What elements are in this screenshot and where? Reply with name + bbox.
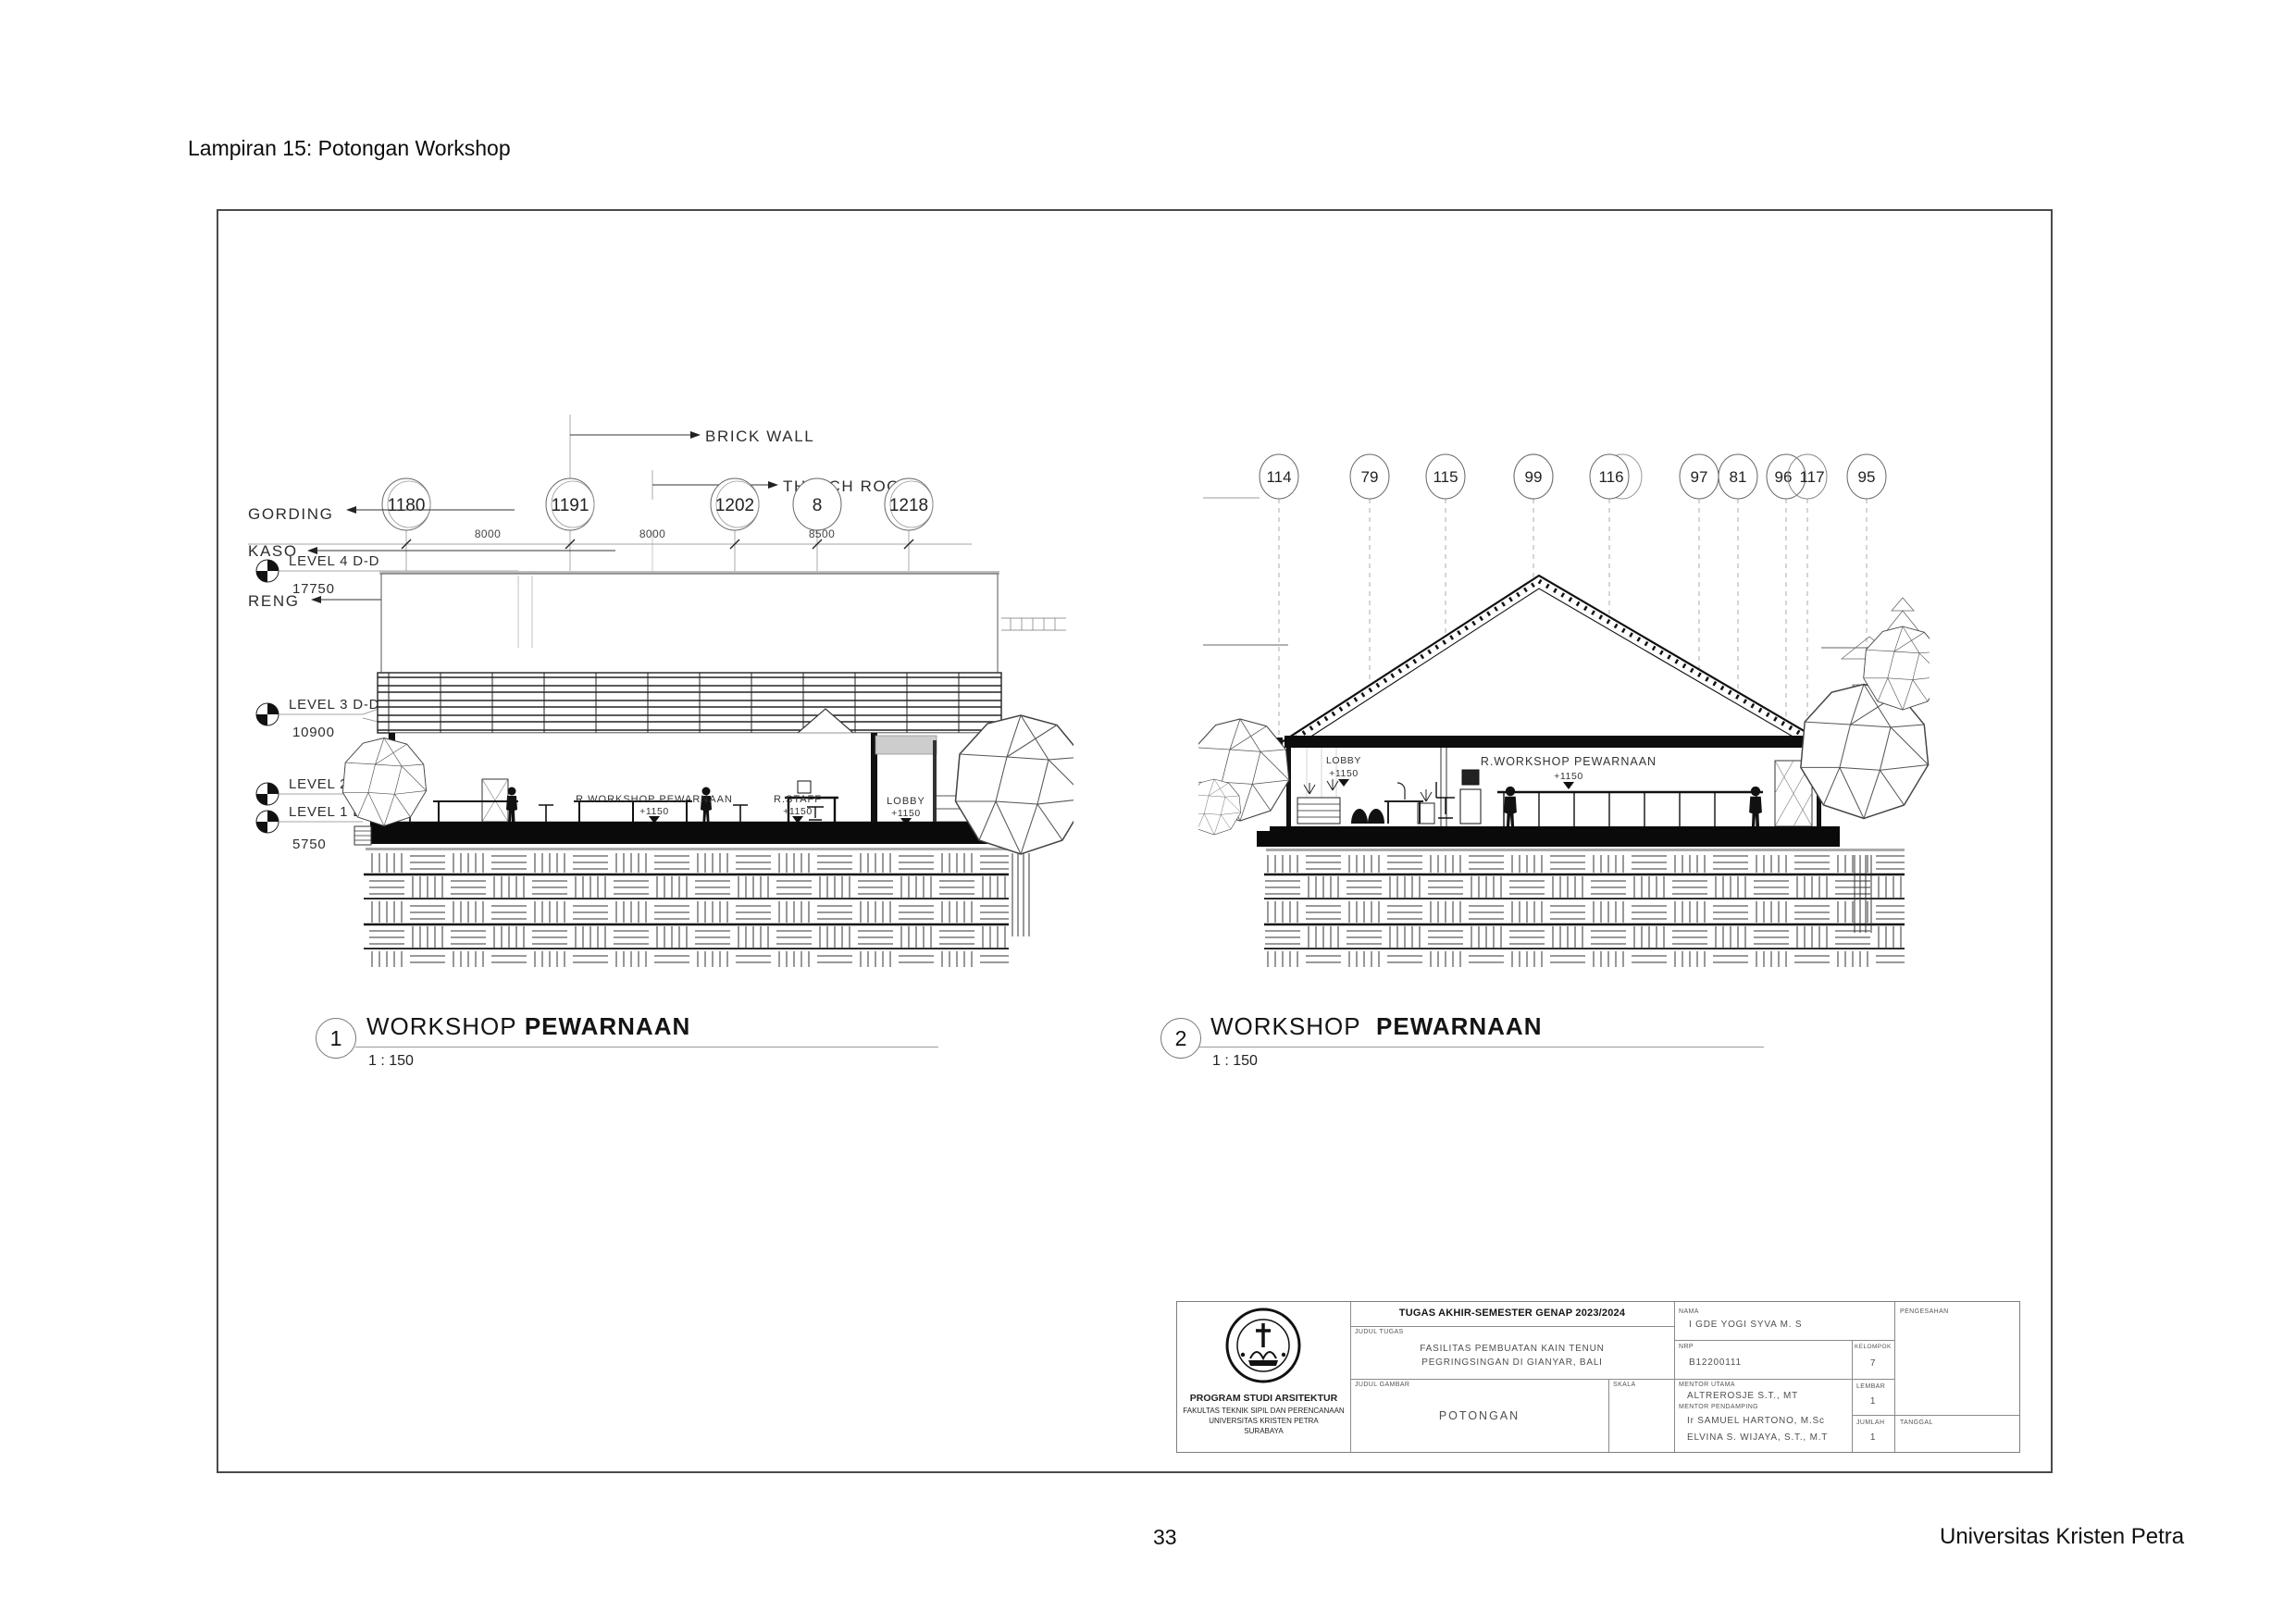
lembar-label: LEMBAR bbox=[1856, 1383, 1885, 1390]
level-3-value: 10900 bbox=[292, 725, 335, 740]
title-block: PROGRAM STUDI ARSITEKTUR FAKULTAS TEKNIK… bbox=[1176, 1301, 2020, 1453]
right-building bbox=[1285, 736, 1821, 826]
grid-bubble-label: 1202 bbox=[715, 496, 754, 515]
drawing-number-badge: 1 bbox=[316, 1018, 356, 1059]
ground-hatch bbox=[364, 853, 1009, 967]
judul-tugas-line2: PEGRINGSINGAN DI GIANYAR, BALI bbox=[1350, 1357, 1674, 1368]
tanggal-label: TANGGAL bbox=[1900, 1419, 1933, 1426]
drawing-scale: 1 : 150 bbox=[1212, 1053, 1258, 1070]
partition bbox=[1441, 748, 1446, 826]
grid-bubble-label: 97 bbox=[1691, 468, 1708, 486]
floor-and-ground bbox=[1257, 826, 1905, 967]
callout-brick-wall: BRICK WALL bbox=[570, 428, 814, 445]
grid-bubble-label: 1191 bbox=[552, 496, 590, 515]
grid-bubble-label: 115 bbox=[1433, 468, 1458, 486]
room-workshop-elev: +1150 bbox=[639, 806, 669, 817]
drawing-title-text: WORKSHOP PEWARNAAN bbox=[366, 1012, 690, 1041]
room-lobby-label: LOBBY bbox=[1326, 755, 1361, 766]
judul-tugas-line1: FASILITAS PEMBUATAN KAIN TENUN bbox=[1350, 1344, 1674, 1354]
footer-institution: Universitas Kristen Petra bbox=[1940, 1524, 2184, 1550]
workshop-furniture bbox=[1436, 770, 1763, 826]
level-3-label: LEVEL 3 D-D bbox=[289, 697, 379, 713]
university-logo bbox=[1224, 1307, 1302, 1384]
nrp-label: NRP bbox=[1679, 1344, 1694, 1350]
judul-gambar-label: JUDUL GAMBAR bbox=[1355, 1382, 1409, 1388]
ground-hatch bbox=[1264, 855, 1905, 967]
mentor-utama-value: ALTREROSJE S.T., MT bbox=[1687, 1391, 1798, 1401]
grid-bubble-label: 79 bbox=[1361, 468, 1379, 486]
lobby-wall bbox=[933, 740, 937, 822]
universitas: UNIVERSITAS KRISTEN PETRA bbox=[1177, 1417, 1350, 1425]
grid-bubble-label: 116 bbox=[1598, 468, 1623, 486]
floor-and-ground bbox=[354, 822, 1029, 967]
tree-trunk bbox=[1012, 853, 1029, 936]
room-lobby-elev: +1150 bbox=[1329, 768, 1359, 779]
dim-8500: 8500 bbox=[809, 527, 835, 540]
brick-wall-label: BRICK WALL bbox=[705, 428, 814, 445]
room-lobby-label: LOBBY bbox=[887, 796, 925, 807]
lobby-beam bbox=[875, 736, 937, 754]
title-underline bbox=[1199, 1047, 1764, 1048]
room-labels: LOBBY +1150 R.WORKSHOP PEWARNAAN +1150 bbox=[1326, 755, 1657, 789]
title-underline bbox=[355, 1047, 938, 1048]
grid-bubble-label: 81 bbox=[1730, 468, 1747, 486]
kelompok-label: KELOMPOK bbox=[1855, 1344, 1892, 1350]
jumlah-value: 1 bbox=[1852, 1432, 1894, 1443]
room-workshop-label: R.WORKSHOP PEWARNAAN bbox=[1481, 755, 1657, 768]
floor-slab bbox=[370, 822, 1007, 844]
gording-label: GORDING bbox=[248, 505, 333, 523]
section-drawing-1: BRICK WALL THATCH ROOF 1180 1191 1202 8 … bbox=[222, 407, 1074, 981]
gable-roof bbox=[1273, 576, 1831, 750]
nama-label: NAMA bbox=[1679, 1308, 1699, 1315]
room-workshop-label: R.WORKSHOP PEWARNAAN bbox=[576, 794, 733, 805]
document-page: Lampiran 15: Potongan Workshop bbox=[0, 0, 2296, 1624]
level-4-value: 17750 bbox=[292, 581, 335, 597]
nrp-value: B12200111 bbox=[1689, 1357, 1742, 1368]
tugas-header: TUGAS AKHIR-SEMESTER GENAP 2023/2024 bbox=[1350, 1308, 1674, 1319]
plank-stack bbox=[354, 826, 371, 845]
section-drawing-2: 114 79 115 99 116 97 81 96 117 95 bbox=[1198, 449, 1930, 972]
nama-value: I GDE YOGI SYVA M. S bbox=[1689, 1320, 1802, 1330]
skala-label: SKALA bbox=[1613, 1382, 1636, 1388]
kelompok-value: 7 bbox=[1852, 1358, 1894, 1369]
grid-bubble-label: 95 bbox=[1858, 468, 1876, 486]
pengesahan-label: PENGESAHAN bbox=[1900, 1308, 1949, 1315]
level-4-label: LEVEL 4 D-D bbox=[289, 553, 379, 569]
drawing-number-badge: 2 bbox=[1160, 1018, 1201, 1059]
ceiling-beam bbox=[1285, 736, 1821, 748]
program-studi: PROGRAM STUDI ARSITEKTUR bbox=[1177, 1393, 1350, 1404]
callout-thatch-roof: THATCH ROOF bbox=[652, 477, 912, 495]
grid-bubble-label: 8 bbox=[813, 496, 823, 515]
judul-tugas-label: JUDUL TUGAS bbox=[1355, 1329, 1404, 1335]
mentor-pendamping-2: ELVINA S. WIJAYA, S.T., M.T bbox=[1687, 1432, 1828, 1443]
kota: SURABAYA bbox=[1177, 1427, 1350, 1435]
drawing-scale: 1 : 150 bbox=[368, 1053, 414, 1070]
mentor-utama-label: MENTOR UTAMA bbox=[1679, 1382, 1735, 1388]
jumlah-label: JUMLAH bbox=[1856, 1419, 1884, 1426]
page-number: 33 bbox=[1153, 1525, 1177, 1550]
louver-roof-band bbox=[378, 673, 1001, 733]
room-staff-label: R.STAFF bbox=[774, 794, 822, 805]
seated-people bbox=[1351, 809, 1384, 824]
person bbox=[1749, 787, 1762, 826]
level-1-value: 5750 bbox=[292, 837, 327, 852]
grid-bubble-label: 1180 bbox=[388, 496, 426, 515]
person bbox=[1504, 787, 1517, 826]
mentor-pendamping-1: Ir SAMUEL HARTONO, M.Sc bbox=[1687, 1416, 1825, 1426]
lembar-value: 1 bbox=[1852, 1396, 1894, 1407]
grid-bubble-label: 117 bbox=[1799, 468, 1824, 486]
grid-bubble-label: 1218 bbox=[889, 496, 928, 515]
floor-slab bbox=[1270, 826, 1840, 847]
dim-8000-b: 8000 bbox=[639, 527, 665, 540]
dimension-line: 8000 8000 8500 bbox=[248, 527, 972, 549]
room-lobby-elev: +1150 bbox=[891, 808, 921, 819]
fakultas: FAKULTAS TEKNIK SIPIL DAN PERENCANAAN bbox=[1177, 1407, 1350, 1415]
grid-bubbles: 114 79 115 99 116 97 81 96 117 95 bbox=[1260, 454, 1886, 499]
grid-bubble-label: 99 bbox=[1525, 468, 1543, 486]
room-workshop-elev: +1150 bbox=[1554, 771, 1583, 782]
judul-gambar-value: POTONGAN bbox=[1350, 1409, 1608, 1422]
grid-bubble-label: 114 bbox=[1266, 468, 1291, 486]
appendix-heading: Lampiran 15: Potongan Workshop bbox=[188, 136, 511, 161]
mentor-pendamping-label: MENTOR PENDAMPING bbox=[1679, 1404, 1758, 1410]
dim-8000-a: 8000 bbox=[475, 527, 501, 540]
room-staff-elev: +1150 bbox=[783, 806, 813, 817]
grid-bubble-label: 96 bbox=[1775, 468, 1793, 486]
drawing-title-text: WORKSHOP PEWARNAAN bbox=[1210, 1012, 1542, 1041]
